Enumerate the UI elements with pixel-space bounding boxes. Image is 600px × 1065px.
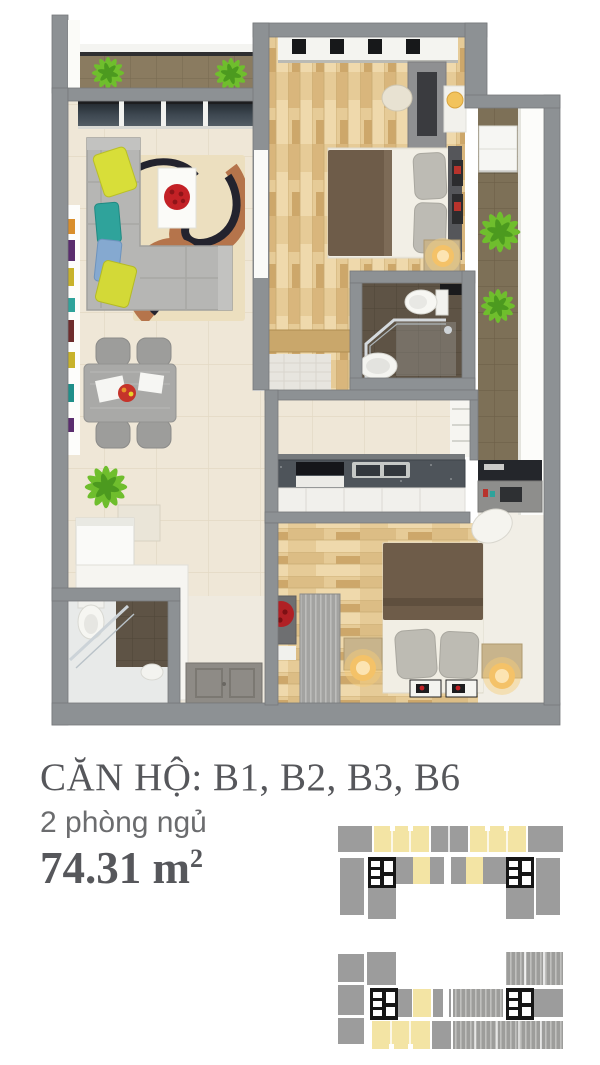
door-handle — [222, 682, 226, 686]
teal-pillow — [94, 202, 121, 244]
laptop — [500, 487, 522, 502]
side-counter — [478, 460, 542, 481]
pillow — [439, 631, 479, 679]
dining-chair — [137, 338, 171, 366]
highlighted-units — [470, 826, 526, 852]
key-plan-upper — [338, 826, 563, 919]
dining-chair — [96, 420, 130, 448]
unit-block — [453, 1021, 563, 1049]
fruit-bowl — [118, 384, 136, 402]
floorplan-render — [0, 0, 600, 745]
bed-2 — [383, 543, 483, 693]
pergola-beam — [78, 44, 258, 52]
elevator-core-icon — [506, 857, 534, 889]
highlighted-units — [374, 826, 429, 852]
elevator-core-icon — [370, 988, 398, 1020]
dining-set — [84, 338, 176, 448]
lamp — [447, 92, 463, 108]
dining-chair — [96, 338, 130, 366]
oven-front — [296, 476, 344, 487]
location-key-plans — [330, 812, 570, 1062]
elevator-core-icon — [506, 988, 534, 1020]
shower-head — [444, 326, 452, 334]
apartment-title: CĂN HỘ: B1, B2, B3, B6 — [40, 756, 480, 800]
pillow — [394, 629, 437, 680]
kitchen-cabinets — [268, 488, 465, 512]
area-value: 74.31 m — [40, 843, 190, 893]
pillow — [413, 152, 447, 200]
area-superscript: 2 — [190, 844, 203, 873]
nightstand-2-right — [482, 644, 522, 695]
highlighted-unit — [413, 989, 431, 1017]
living-window — [78, 101, 255, 128]
highlighted-units — [372, 1021, 430, 1049]
elevator-core-icon — [368, 857, 396, 889]
cooktop — [296, 462, 344, 475]
desk-chair — [382, 85, 412, 111]
sink-1 — [359, 353, 397, 379]
corridor-outer-wall-face — [518, 100, 544, 515]
key-plan-svg — [330, 812, 570, 1062]
highlighted-unit — [413, 857, 430, 884]
duvet — [383, 543, 483, 620]
apartment-floorplan — [0, 0, 600, 745]
toilet-1 — [405, 290, 448, 315]
flower-centerpiece — [164, 184, 190, 210]
coffee-table — [158, 168, 196, 228]
dining-chair — [137, 420, 171, 448]
bedroom1-door — [254, 150, 268, 278]
brochure-page: CĂN HỘ: B1, B2, B3, B6 2 phòng ngủ 74.31… — [0, 0, 600, 1065]
entry — [186, 663, 262, 703]
nightstand-2-left — [344, 638, 382, 687]
duvet — [328, 150, 392, 256]
wardrobe — [300, 594, 340, 708]
highlighted-unit — [466, 857, 483, 884]
sink-2 — [141, 664, 163, 680]
vanity — [269, 330, 353, 352]
placemat — [138, 372, 164, 393]
hallway-floor — [278, 400, 452, 455]
nightstand-1 — [424, 238, 461, 274]
unit-block — [506, 952, 563, 985]
key-plan-lower — [338, 952, 563, 1049]
